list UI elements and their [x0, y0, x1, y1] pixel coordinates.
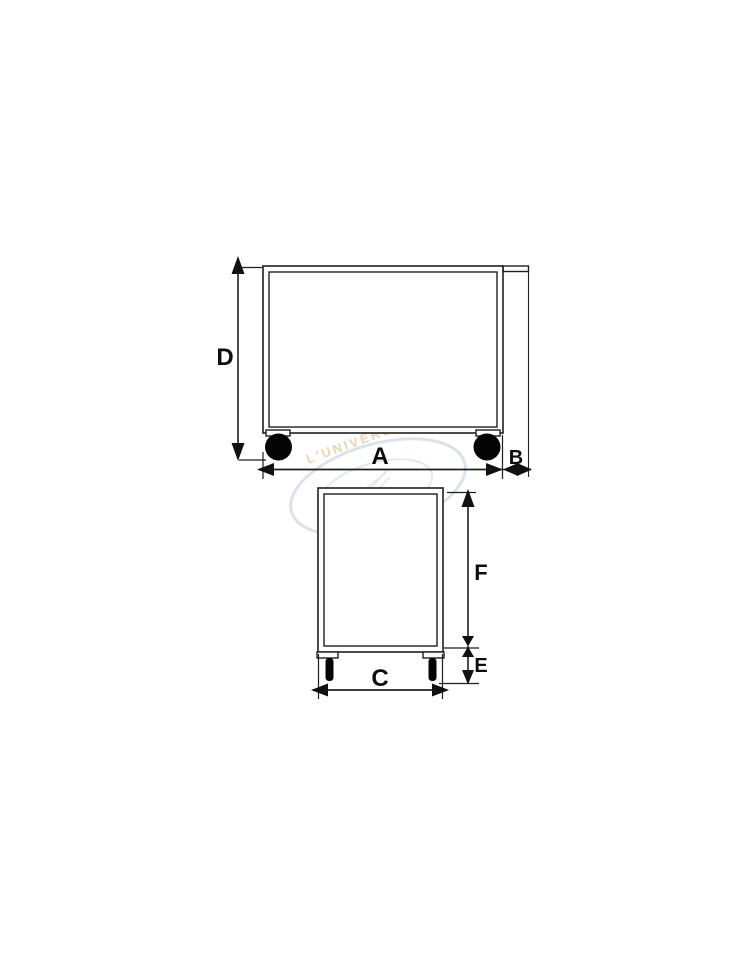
side-view: D A B	[216, 256, 532, 479]
wheel-right	[474, 434, 501, 461]
dimension-e: E	[439, 646, 488, 685]
leg-tab-right	[423, 652, 444, 658]
front-view-body-outer	[318, 488, 443, 652]
dimension-d-arrow-up	[232, 256, 245, 274]
dimension-c-arrow-right	[432, 684, 449, 697]
trolley-dimension-diagram: L'UNIVERSO DEI CARRELLI D	[0, 0, 750, 962]
dimension-label-a: A	[371, 443, 388, 470]
diagram-canvas: L'UNIVERSO DEI CARRELLI D	[0, 0, 750, 962]
dimension-label-b: B	[509, 447, 523, 469]
dimension-label-d: D	[216, 344, 233, 371]
side-view-handle	[503, 266, 529, 272]
front-view: F E C	[311, 488, 488, 699]
leg-tab-left	[317, 652, 338, 658]
dimension-c-arrow-left	[311, 684, 328, 697]
leg-right	[429, 658, 437, 681]
dimension-label-e: E	[474, 655, 487, 677]
dimension-d: D	[216, 256, 266, 461]
dimension-label-f: F	[474, 560, 487, 585]
dimension-e-arrow-down	[462, 670, 474, 685]
wheel-left	[265, 434, 292, 461]
dimension-d-arrow-down	[232, 443, 245, 461]
dimension-b: B	[503, 272, 532, 477]
leg-left	[326, 658, 334, 681]
dimension-d-extension-lines	[239, 268, 266, 461]
dimension-f-arrow-up	[462, 489, 475, 507]
dimension-label-c: C	[371, 665, 388, 692]
dimension-a-arrow-left	[257, 463, 274, 476]
dimension-f-arrow-down	[462, 636, 474, 647]
dimension-a-arrow-right	[486, 463, 503, 476]
side-view-body-outer	[263, 266, 503, 433]
dimension-f: F	[444, 489, 488, 648]
